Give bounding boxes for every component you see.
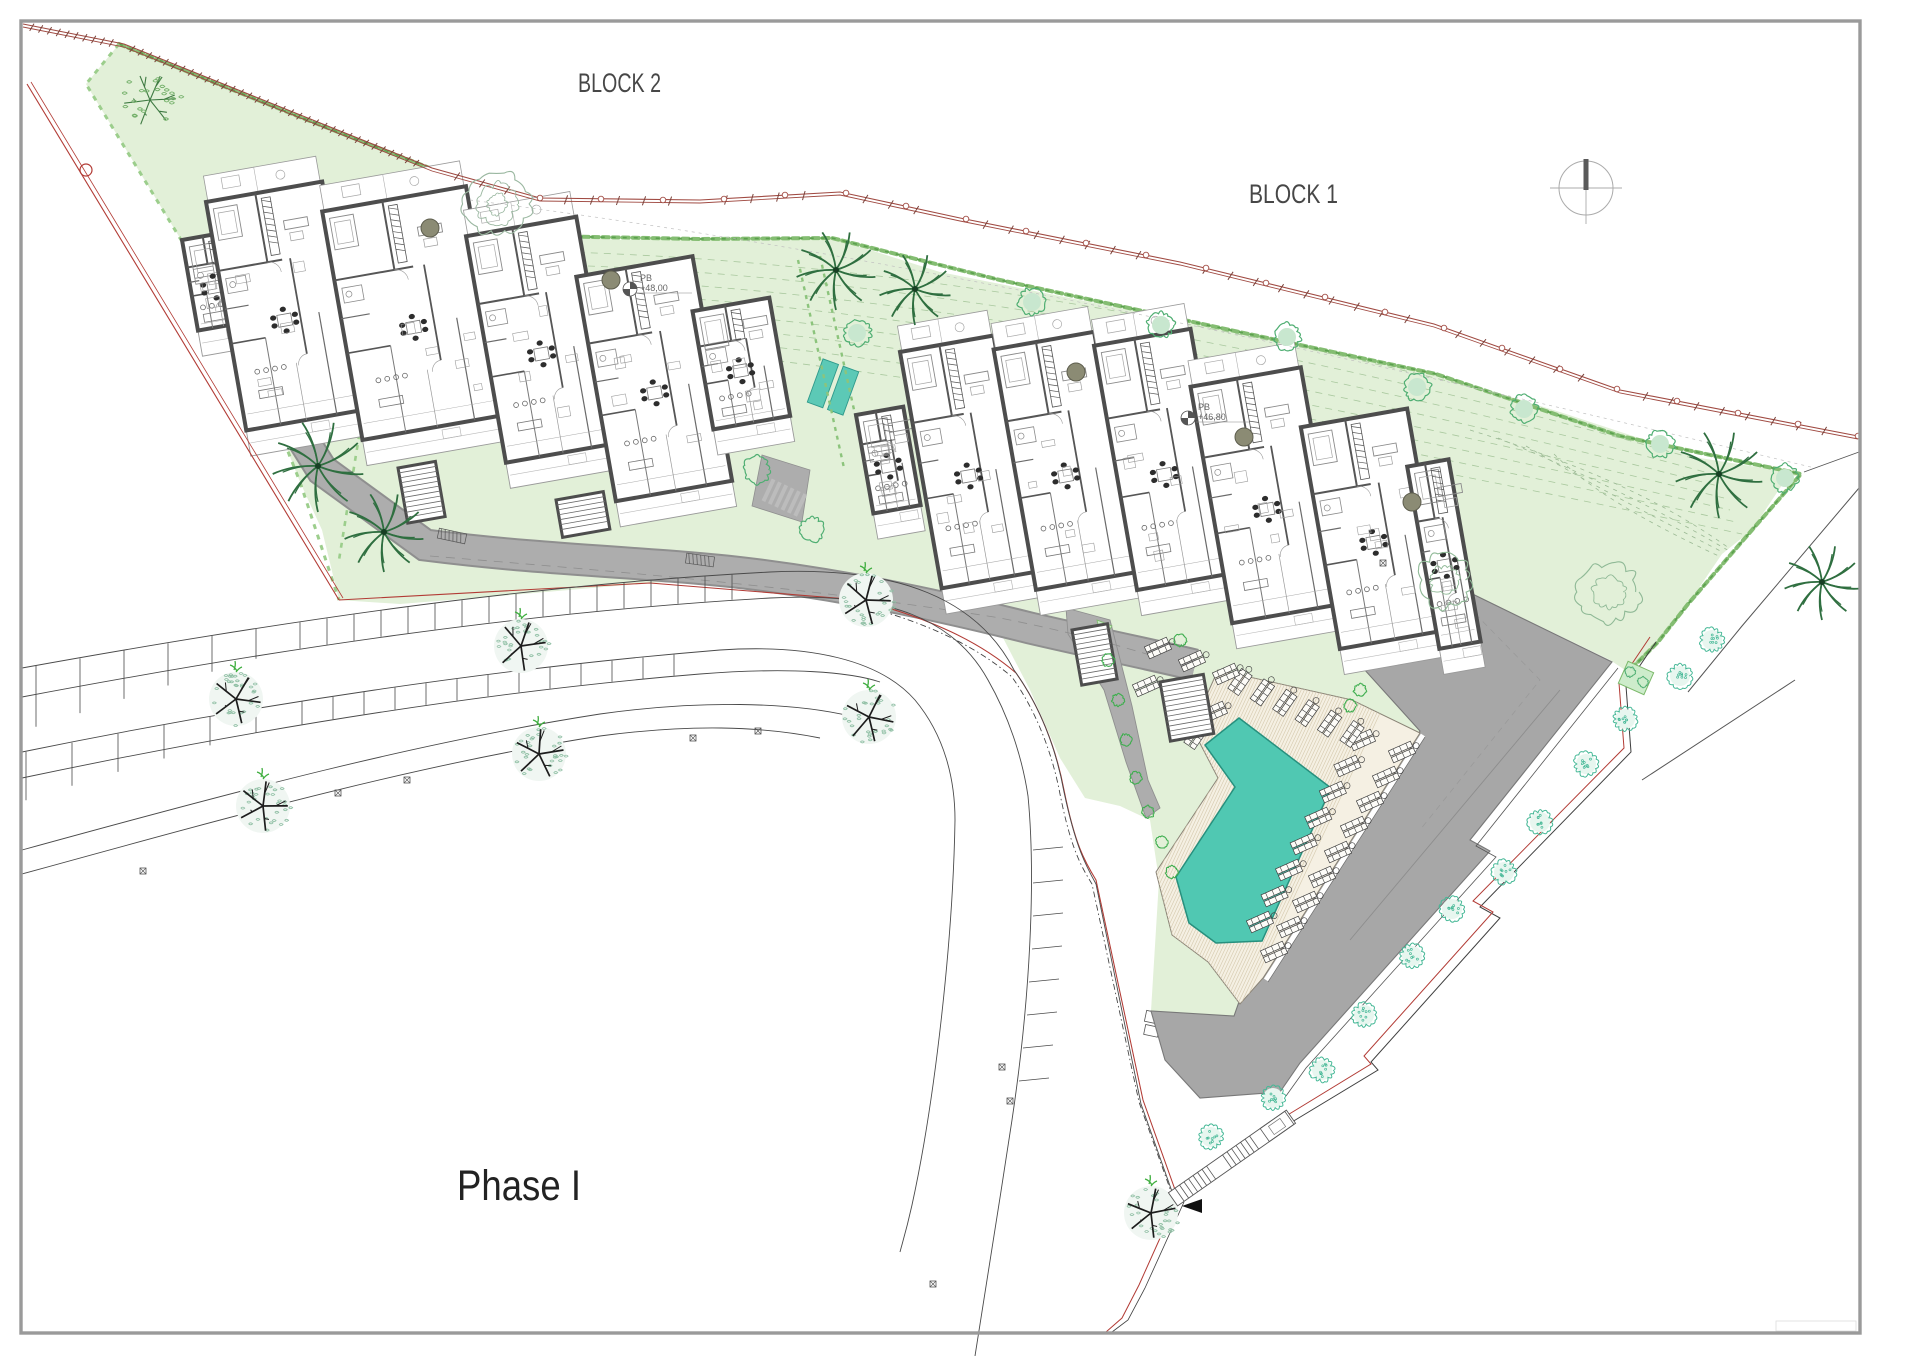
svg-text:Phase I: Phase I (457, 1162, 581, 1210)
svg-text:BLOCK 2: BLOCK 2 (578, 68, 661, 98)
svg-text:BLOCK 1: BLOCK 1 (1249, 179, 1338, 209)
svg-text:+46,80: +46,80 (1198, 412, 1226, 422)
svg-text:PB: PB (1198, 402, 1210, 412)
svg-text:PB: PB (640, 273, 652, 283)
svg-text:+48,00: +48,00 (640, 283, 668, 293)
